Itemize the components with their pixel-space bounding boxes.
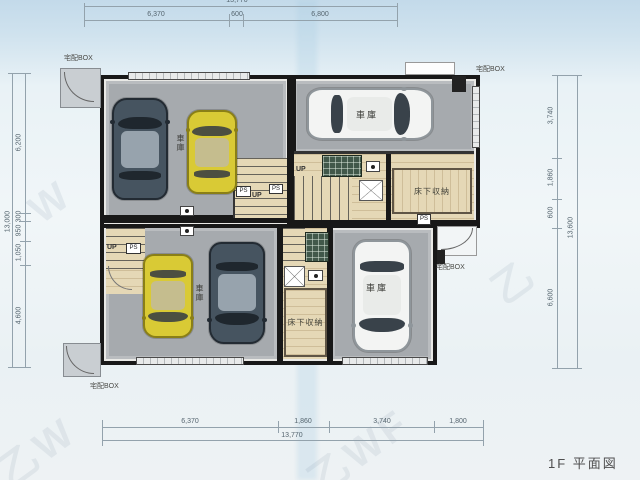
dim-bottom-seg: 1,860 <box>278 417 328 426</box>
car-windshield <box>192 126 232 136</box>
entry-mat-top-right <box>322 155 362 177</box>
dim-line <box>84 20 397 21</box>
dim-right-total: 13,600 <box>567 208 576 248</box>
dim-bottom-seg: 1,800 <box>433 417 483 426</box>
garage-shutter-bottom-left <box>136 357 244 365</box>
meter-box <box>366 161 380 172</box>
dim-right-seg: 1,860 <box>547 158 556 198</box>
delivery-box-unit <box>452 76 466 92</box>
watermark: 乙W <box>0 400 87 480</box>
drawing-title: 1F 平面図 <box>548 453 618 472</box>
car-rear-window <box>150 270 187 278</box>
garage-label-bottom-left: 車庫 <box>194 284 205 302</box>
dim-right-seg: 6,600 <box>547 278 556 318</box>
car-windshield <box>118 117 163 130</box>
dim-line <box>102 427 483 428</box>
car-mirror <box>207 318 212 323</box>
dim-tick <box>8 73 31 74</box>
pipe-space: PS <box>417 214 431 225</box>
delivery-box-label: 宅配BOX <box>90 381 119 391</box>
dim-bottom-seg: 6,370 <box>165 417 215 426</box>
dim-tick <box>20 241 31 242</box>
pipe-space: PS <box>269 184 283 194</box>
car-roof <box>151 281 184 311</box>
car-roof <box>195 138 228 168</box>
stairs-bottom-middle <box>283 228 305 268</box>
car-rear-window <box>194 170 231 178</box>
dim-tick <box>552 368 582 369</box>
watermark: W <box>21 172 81 233</box>
watermark: 乙 <box>477 243 547 316</box>
stairs-up-label: UP <box>296 166 306 173</box>
pipe-space: PS <box>236 186 251 197</box>
meter-box <box>180 206 194 216</box>
dim-tick <box>229 14 230 27</box>
car-rear-window <box>331 95 343 133</box>
garage-shutter-right <box>472 86 480 148</box>
dim-tick <box>278 421 279 433</box>
wall-hall-divider <box>386 154 391 220</box>
car-yellow-top-left <box>187 110 237 194</box>
car-mirror <box>401 87 407 91</box>
dim-line <box>25 73 26 367</box>
shaft-box <box>359 180 383 201</box>
car-mirror <box>165 120 170 125</box>
dim-tick <box>434 421 435 433</box>
dim-tick <box>483 420 484 446</box>
dim-bottom-total: 13,770 <box>267 431 317 440</box>
car-roof <box>218 274 255 310</box>
dim-tick <box>552 199 562 200</box>
dim-tick <box>84 3 85 27</box>
delivery-box-label: 宅配BOX <box>436 262 465 272</box>
car-dark-top-left <box>112 98 168 200</box>
dim-tick <box>329 421 330 433</box>
dim-right-seg: 3,740 <box>547 96 556 136</box>
car-windshield <box>148 312 188 322</box>
car-yellow-bottom-left <box>143 254 193 338</box>
car-windshield <box>215 313 260 326</box>
dim-tick <box>397 3 398 27</box>
car-mirror <box>110 120 115 125</box>
window-top <box>405 62 455 75</box>
dim-line <box>102 440 483 441</box>
dim-tick <box>552 158 562 159</box>
underfloor-storage-right: 床下収納 <box>392 168 472 214</box>
stairs-up-label: UP <box>252 192 262 199</box>
dim-tick <box>20 213 31 214</box>
dim-tick <box>20 221 31 222</box>
dim-left-seg: 6,200 <box>15 123 24 163</box>
entry-mat-bottom-middle <box>305 232 329 262</box>
car-mirror <box>262 318 267 323</box>
garage-label-top-left: 車庫 <box>175 134 186 152</box>
underfloor-storage-middle: 床下収納 <box>284 288 327 357</box>
dim-line <box>557 75 558 368</box>
car-rear-window <box>216 262 258 272</box>
car-rear-window <box>360 261 403 272</box>
car-dark-bottom-left <box>209 242 265 344</box>
dim-tick <box>102 420 103 446</box>
dim-bottom-seg: 3,740 <box>357 417 407 426</box>
stairs-top-right <box>294 176 352 220</box>
meter-box <box>180 226 194 236</box>
garage-label-top-right: 車庫 <box>356 108 378 121</box>
garage-shutter-top <box>128 72 250 80</box>
dim-tick <box>8 367 31 368</box>
dim-tick <box>552 228 562 229</box>
dim-left-seg: 1,050 <box>15 233 24 273</box>
dim-top-seg: 600 <box>219 10 255 19</box>
dim-left-seg: 4,600 <box>15 296 24 336</box>
dim-top-seg: 6,800 <box>295 10 345 19</box>
garage-label-bottom-right: 車庫 <box>366 281 388 294</box>
car-mirror <box>351 323 356 328</box>
car-windshield <box>359 318 405 332</box>
car-white-bottom-right <box>353 240 411 352</box>
dim-line <box>577 75 578 368</box>
stairs-up-label: UP <box>107 244 117 251</box>
dim-top-seg: 6,370 <box>131 10 181 19</box>
car-roof <box>121 131 158 167</box>
floor-plan-scan: 乙W 乙WF 乙 W 13,770 6,370 600 6,800 6,370 … <box>0 0 640 480</box>
pipe-space: PS <box>126 243 141 254</box>
dim-tick <box>20 265 31 266</box>
car-windshield <box>394 93 410 134</box>
delivery-box-label: 宅配BOX <box>476 64 505 74</box>
meter-box <box>308 270 323 281</box>
dim-left-total: 13,000 <box>4 202 13 242</box>
delivery-box-label: 宅配BOX <box>64 53 93 63</box>
car-mirror <box>186 128 190 132</box>
dim-tick <box>243 14 244 27</box>
car-mirror <box>142 316 146 320</box>
dim-line <box>84 6 397 7</box>
dim-tick <box>552 75 582 76</box>
car-rear-window <box>119 171 161 181</box>
dim-top-total: 13,770 <box>211 0 263 5</box>
shaft-box <box>284 266 305 287</box>
garage-shutter-bottom-right <box>342 357 428 365</box>
